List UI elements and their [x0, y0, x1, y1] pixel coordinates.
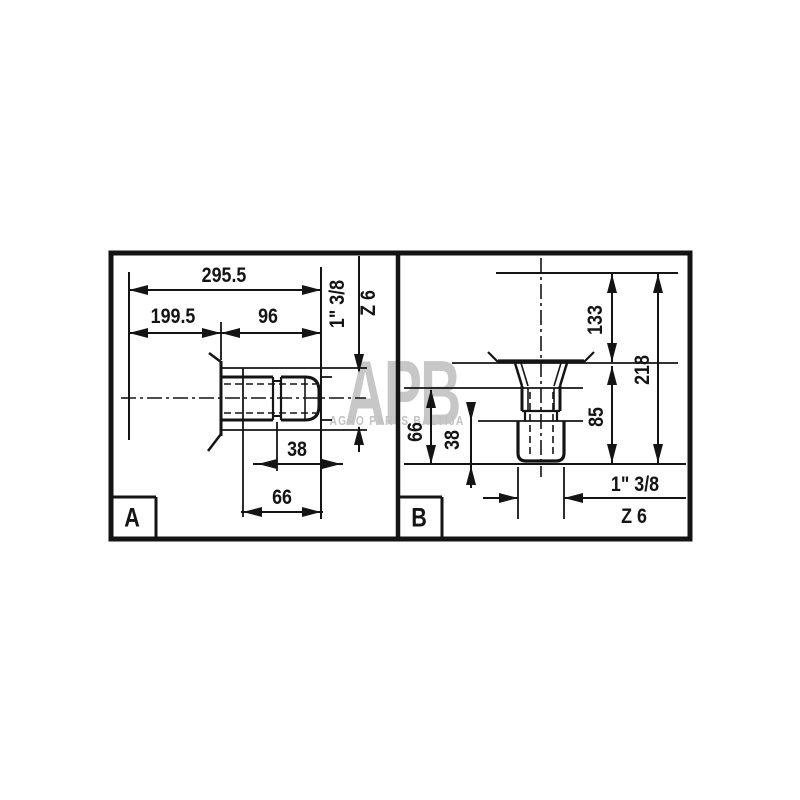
view-label-a: A	[124, 503, 140, 534]
dim-label-spline-length-b: 38	[441, 430, 465, 450]
dim-label-total-length-a: 295.5	[202, 264, 247, 288]
technical-drawing-stage: APB AGRO PARTS BALTIJA	[0, 0, 800, 800]
dim-label-spline-size-b: 1" 3/8	[611, 473, 659, 497]
dim-label-side-length-b: 66	[404, 422, 428, 442]
dim-label-end-length-a: 66	[272, 486, 292, 510]
dim-label-spline-teeth-a: Z 6	[357, 290, 381, 316]
page-background: { "watermark": { "logo": "APB", "subtitl…	[0, 0, 800, 800]
dim-label-lower-length-b: 85	[585, 407, 609, 427]
dim-label-right-length-a: 96	[258, 305, 278, 329]
dim-label-spline-teeth-b: Z 6	[621, 505, 647, 529]
dim-label-left-length-a: 199.5	[151, 305, 196, 329]
dim-label-upper-length-b: 133	[584, 305, 608, 335]
panel-b-view	[398, 258, 686, 540]
dim-label-spline-length-a: 38	[287, 438, 307, 462]
view-label-b: B	[411, 503, 427, 534]
dim-label-total-length-b: 218	[631, 355, 655, 385]
dimension-drawing	[0, 0, 800, 800]
dim-label-spline-size-a: 1" 3/8	[326, 280, 350, 328]
